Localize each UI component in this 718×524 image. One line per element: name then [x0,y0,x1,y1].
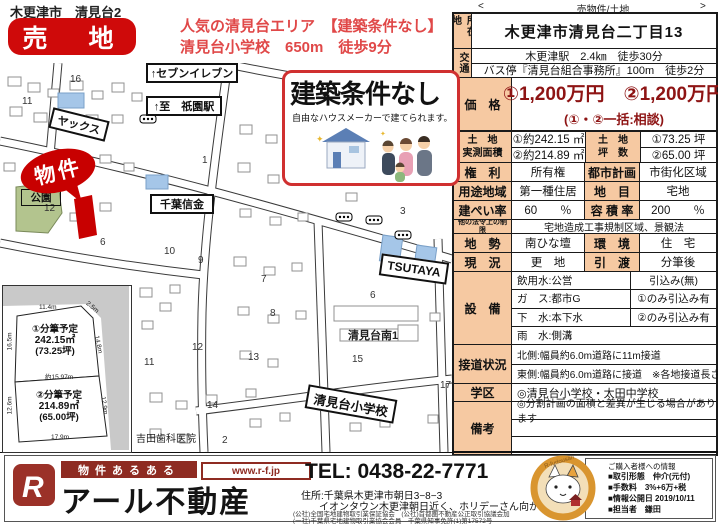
lot2-area: 214.89㎡ [27,401,91,412]
callout-subtitle: 自由なハウスメーカーで建てられます。 [292,111,457,124]
city-plan-value: 市街化区域 [640,163,716,181]
lot2-tsubo: (65.00坪) [27,412,91,423]
rights-label: 権 利 [454,163,512,181]
callout-title: 建築条件なし [290,74,457,111]
flyer-page: 木更津市 清見台2 売 地 人気の清見台エリア 【建築条件なし】 清見台小学校 … [0,0,718,524]
r-logo: R [13,464,55,506]
map-block-number: 11 [144,357,154,368]
promo-line1: 人気の清見台エリア 【建築条件なし】 [180,16,443,37]
no-building-conditions-callout: 建築条件なし 自由なハウスメーカーで建てられます。 ✦ ✦ [282,70,460,186]
map-block-number: 12 [192,342,203,353]
environment-value: 住 宅 [640,234,716,252]
terrain-label: 地 勢 [454,234,512,252]
agent-name: ■担当者 鎌田 [608,504,661,515]
map-block-number: 7 [261,274,267,285]
phone-number: TEL: 0438-22-7771 [305,460,488,484]
environment-label: 環 境 [585,234,640,252]
transaction-type: ■取引形態 仲介(元付) [608,471,690,482]
property-details-panel: 所在地 木更津市清見台二丁目13 交通 木更津駅 2.4㎞ 徒歩30分 バス停『… [452,12,718,456]
map-block-number: 15 [352,354,363,365]
land-area-2: ②約214.89 ㎡ [512,148,585,163]
access-line2: バス停『清見台組合事務所』100m 徒歩2分 [472,64,716,78]
utility-rain: 雨 水:側溝 [512,327,716,344]
lot2-title: ②分筆予定 [27,390,91,401]
dim-left1: 16.5m [7,332,14,350]
handover-label: 引 渡 [585,253,640,271]
utility-gas-note: ①のみ引込み有 [630,290,716,307]
utility-sewer-note: ②のみ引込み有 [630,309,716,326]
map-label-kiyomidai-minami: 清見台南1 [348,327,398,343]
land-area-1: ①約242.15 ㎡ [512,132,585,148]
map-block-number: 2 [222,435,228,446]
utility-sewer: 下 水:本下水 ②のみ引込み有 [512,309,716,327]
lot-subdivision-diagram: ①分筆予定 242.15㎡ (73.25坪) ②分筆予定 214.89㎡ (65… [2,285,132,453]
terrain-value: 南ひな壇 [512,234,585,252]
rights-value: 所有権 [512,163,585,181]
map-label-seven-eleven: ↑セブンイレブン [146,63,238,83]
map-block-number: 16 [70,74,81,85]
notes-value: ◎分割計画の面積と差異が生じる場合があります [512,402,716,420]
handover-value: 分筆後 [640,253,716,271]
road-access-line2: 東側:幅員約6.0m道路に接道 ※各地接道長さ参照 [512,365,716,384]
road-access-line1: 北側:幅員約6.0m道路に11m接道 [512,345,716,365]
land-area-label: 土 地 実測面積 [454,132,512,162]
price-value: ①1,200万円 ②1,200万円 [512,78,716,107]
tsubo-2: ②65.00 坪 [641,148,716,163]
map-block-number: 6 [100,237,106,248]
tagline-banner: 物件あるある [61,461,197,478]
notes-label: 備考 [454,402,512,454]
map-block-number: 13 [248,352,259,363]
map-block-number: 6 [370,290,376,301]
status-label: 現 況 [454,253,512,271]
utilities-label: 設 備 [454,272,512,344]
other-laws-value: 宅地造成工事規制区域、景観法 [512,220,716,233]
publish-date: ■情報公開日 2019/10/11 [608,493,695,504]
map-block-number: 9 [198,255,204,266]
buyer-info-box: ご購入者様への情報 ■取引形態 仲介(元付) ■手数料 3%+6万+税 ■情報公… [585,458,713,519]
land-category-label: 地 目 [585,182,640,200]
floor-area-ratio-label: 容 積 率 [585,201,640,219]
map-label-dental-clinic: ・吉田歯科医院 [126,430,196,445]
dim-top: 11.4m [39,304,57,311]
price-note: (①・②一括:相談) [512,107,716,130]
promo-text: 人気の清見台エリア 【建築条件なし】 清見台小学校 650m 徒歩9分 [180,16,443,58]
dim-left2: 12.6m [7,396,14,414]
city-plan-label: 都市計画 [585,163,640,181]
map-block-number: 14 [207,400,218,411]
tsubo-label: 土 地 坪 数 [586,132,641,162]
family-house-illustration: ✦ ✦ [288,126,454,182]
map-block-number: 10 [164,246,175,257]
map-label-gion-station: ↑至 祇園駅 [146,96,222,116]
sale-land-badge: 売 地 [8,18,136,55]
zoning-label: 用途地域 [454,182,512,200]
svg-text:✦: ✦ [316,134,324,144]
utility-gas: ガ ス:都市G ①のみ引込み有 [512,290,716,308]
zoning-value: 第一種住居 [512,182,585,200]
lot1-area: 242.15㎡ [23,335,87,346]
map-block-number: 3 [400,206,406,217]
promo-line2: 清見台小学校 650m 徒歩9分 [180,37,443,58]
location-value: 木更津市清見台二丁目13 [472,14,716,48]
location-label: 所在地 [454,14,472,48]
footer: R 物件あるある www.r-f.jp アール不動産 TEL: 0438-22-… [4,455,716,522]
lot1-title: ①分筆予定 [23,324,87,335]
road-access-label: 接道状況 [454,345,512,383]
status-value: 更 地 [512,253,585,271]
coverage-ratio-label: 建ぺい率 [454,201,512,219]
map-block-number: 11 [22,96,32,107]
association-line2: (一社)千葉県宅地建物取引業協会会員 千葉県知事免許(1)第17572号 [293,515,492,524]
utility-water-note: 引込み(無) [630,272,716,289]
map-block-number: 1 [202,155,208,166]
utility-water: 飲用水:公営 引込み(無) [512,272,716,290]
coverage-ratio-value: 60 ％ [512,201,585,219]
dim-bottom: 17.9m [51,434,69,441]
svg-text:✦: ✦ [380,130,386,138]
commission: ■手数料 3%+6万+税 [608,482,686,493]
nav-prev-arrow[interactable]: < [478,1,484,12]
svg-text:R: R [22,471,44,504]
land-category-value: 宅地 [640,182,716,200]
map-label-chiba-shinkin: 千葉信金 [150,194,214,214]
lot2-text: ②分筆予定 214.89㎡ (65.00坪) [27,390,91,423]
cat-mascot-logo: R-fudousan [529,455,599,521]
other-laws-label: 他の法令上の制限 [454,220,512,233]
floor-area-ratio-value: 200 ％ [640,201,716,219]
lot1-text: ①分筆予定 242.15㎡ (73.25坪) [23,324,87,357]
company-name: アール不動産 [61,477,251,521]
notes-empty-row [512,420,716,438]
school-district-label: 学区 [454,384,512,401]
tsubo-1: ①73.25 坪 [641,132,716,148]
dim-middle: 約15.97m [45,371,73,381]
map-block-number: 8 [270,308,276,319]
lot1-tsubo: (73.25坪) [23,346,87,357]
map-block-number: 17 [440,380,451,391]
nav-next-arrow[interactable]: > [700,1,706,12]
